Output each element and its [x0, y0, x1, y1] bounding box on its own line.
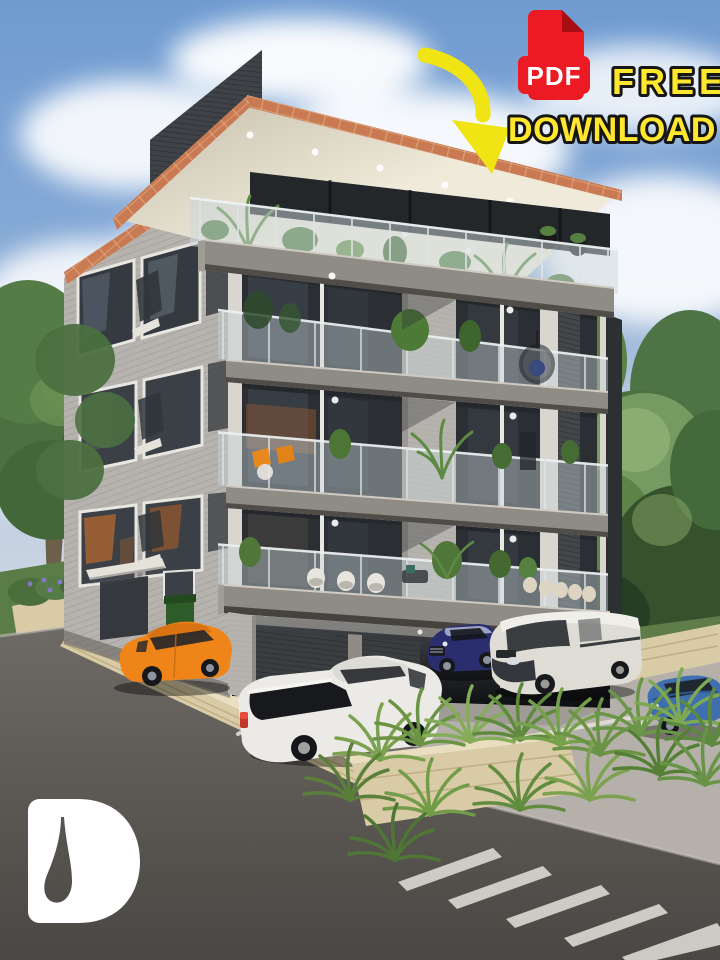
white-van — [490, 611, 642, 701]
pdf-icon-label: PDF — [527, 61, 582, 91]
architectural-render-scene: PDF FREE DOWNLOAD D — [0, 0, 720, 960]
download-label[interactable]: DOWNLOAD — [508, 111, 716, 149]
free-label[interactable]: FREE — [612, 61, 720, 102]
render-image: PDF FREE DOWNLOAD D — [0, 0, 720, 960]
right-side-return — [606, 314, 622, 648]
d-watermark-logo: D — [28, 799, 140, 923]
